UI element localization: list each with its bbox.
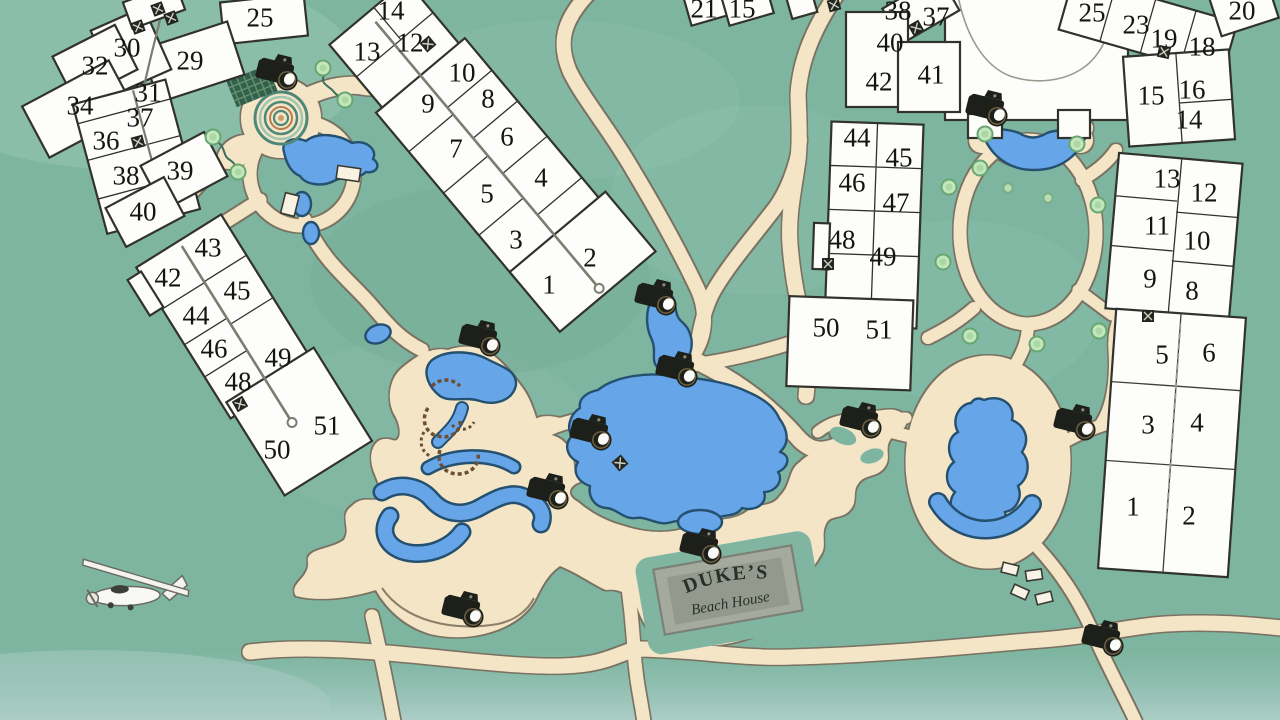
svg-text:47: 47 [883,187,910,217]
svg-text:45: 45 [886,142,913,172]
svg-text:34: 34 [67,90,95,120]
svg-text:10: 10 [449,57,476,87]
svg-text:42: 42 [866,66,893,96]
svg-text:5: 5 [1155,339,1169,369]
svg-text:44: 44 [183,300,211,330]
svg-text:20: 20 [1229,0,1256,25]
svg-text:11: 11 [1144,210,1170,240]
svg-text:48: 48 [829,224,856,254]
svg-text:7: 7 [449,133,463,163]
svg-text:1: 1 [542,269,556,299]
svg-text:37: 37 [923,1,950,31]
svg-text:9: 9 [421,88,435,118]
svg-text:51: 51 [314,410,341,440]
svg-text:23: 23 [1123,9,1150,39]
svg-text:29: 29 [177,45,204,75]
svg-text:13: 13 [1154,163,1181,193]
svg-text:15: 15 [729,0,756,23]
svg-text:40: 40 [877,27,904,57]
svg-text:8: 8 [481,83,495,113]
svg-text:39: 39 [167,155,194,185]
svg-text:38: 38 [113,160,140,190]
svg-text:37: 37 [127,102,154,132]
svg-text:41: 41 [918,59,945,89]
svg-text:25: 25 [1079,0,1106,27]
svg-text:30: 30 [114,32,141,62]
svg-text:15: 15 [1138,80,1165,110]
svg-text:3: 3 [509,224,523,254]
svg-text:4: 4 [1190,407,1204,437]
svg-text:18: 18 [1189,31,1216,61]
svg-text:4: 4 [534,162,548,192]
svg-text:2: 2 [1182,500,1196,530]
svg-text:13: 13 [354,36,381,66]
svg-text:8: 8 [1185,275,1199,305]
svg-text:12: 12 [1191,177,1218,207]
svg-text:36: 36 [93,125,120,155]
svg-text:1: 1 [1126,491,1140,521]
svg-text:14: 14 [1176,104,1204,134]
svg-text:3: 3 [1141,409,1155,439]
svg-text:49: 49 [870,241,897,271]
svg-text:48: 48 [225,366,252,396]
svg-text:25: 25 [247,2,274,32]
svg-text:6: 6 [1202,337,1216,367]
svg-text:12: 12 [397,27,424,57]
svg-text:45: 45 [224,275,251,305]
svg-text:32: 32 [82,50,109,80]
svg-text:38: 38 [885,0,912,25]
svg-text:42: 42 [155,262,182,292]
svg-text:51: 51 [866,314,893,344]
svg-text:14: 14 [378,0,406,25]
svg-text:10: 10 [1184,225,1211,255]
svg-text:46: 46 [839,167,866,197]
svg-text:21: 21 [691,0,718,23]
svg-text:50: 50 [264,434,291,464]
svg-text:2: 2 [583,242,597,272]
svg-text:44: 44 [844,122,872,152]
svg-text:50: 50 [813,312,840,342]
svg-text:9: 9 [1143,263,1157,293]
svg-text:49: 49 [265,342,292,372]
svg-text:46: 46 [201,333,228,363]
svg-text:43: 43 [195,232,222,262]
svg-text:40: 40 [130,196,157,226]
svg-text:16: 16 [1179,74,1206,104]
svg-text:6: 6 [500,121,514,151]
svg-text:5: 5 [480,178,494,208]
